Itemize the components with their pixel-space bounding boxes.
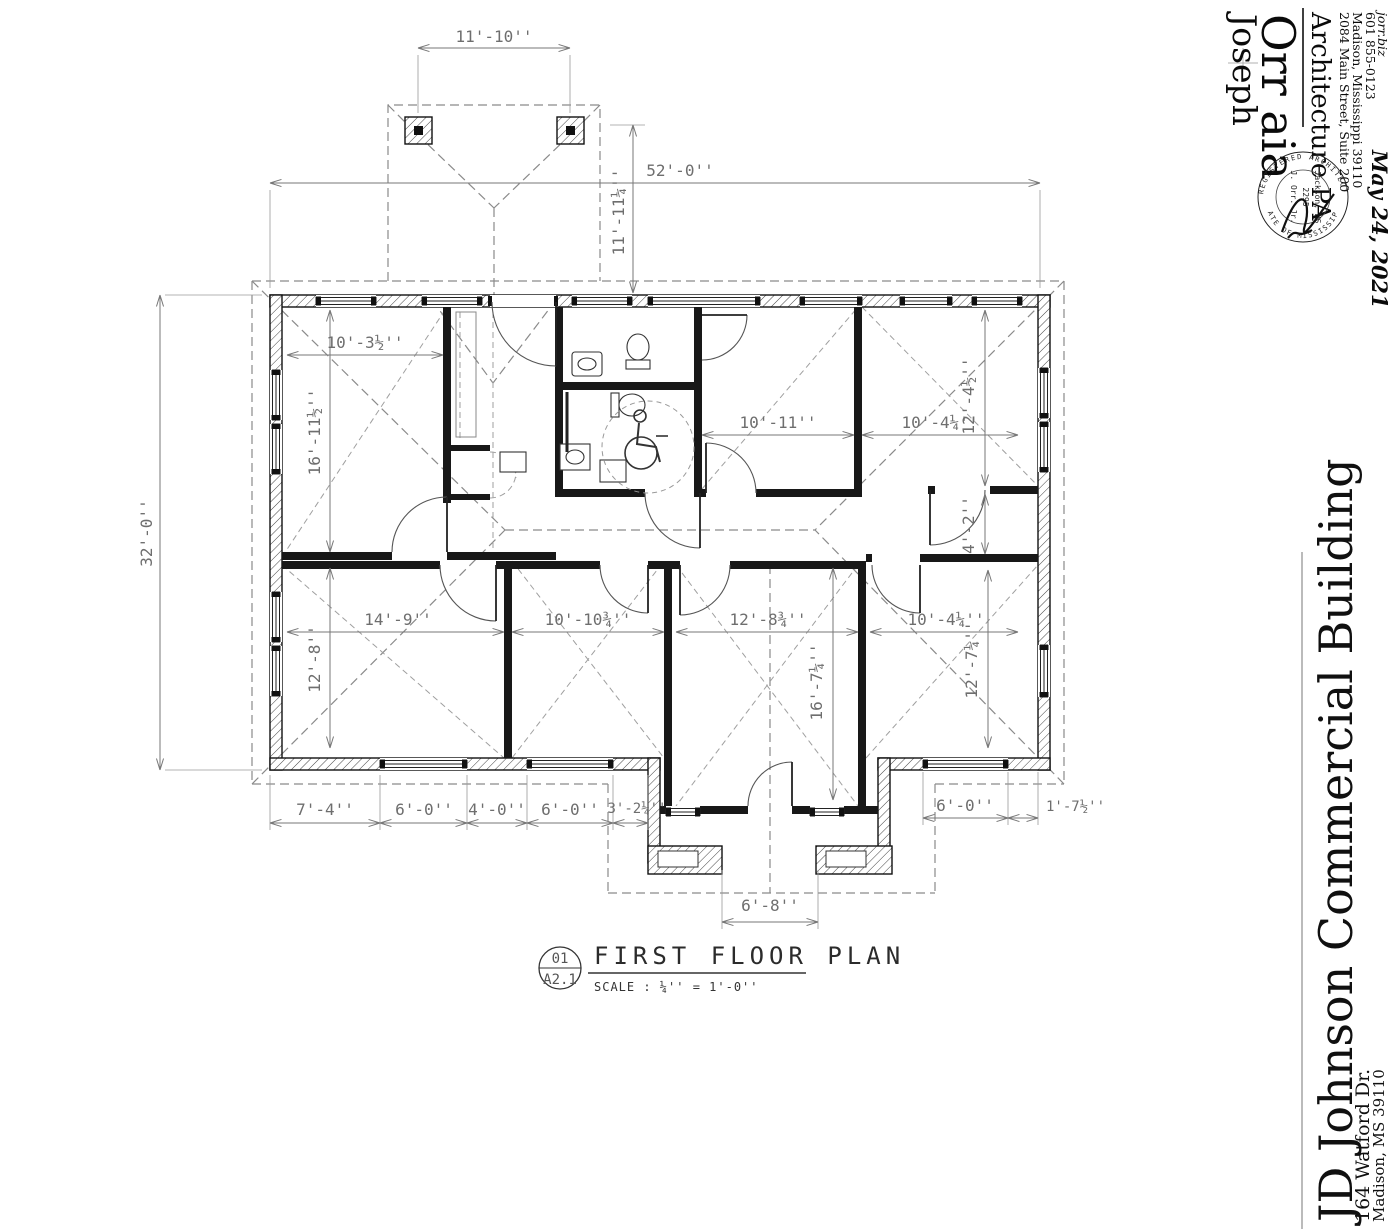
front-door-opening [488, 295, 558, 307]
dimension-lines [156, 44, 1040, 925]
dim-conference-depth: 16'-7¼'' [807, 643, 826, 720]
restroom-fixtures [500, 334, 694, 493]
title-block: 01 A2.1 FIRST FLOOR PLAN SCALE : ¼'' = 1… [539, 942, 905, 994]
architect-city: Madison, Mississippi 39110 [1350, 12, 1365, 188]
dim-office-sw-depth: 12'-8'' [305, 625, 324, 692]
interior-walls [282, 307, 1038, 814]
sheet-number: A2.1 [543, 972, 577, 988]
toilet-icon [627, 334, 649, 360]
dim-south-seg2: 6'-0'' [395, 800, 453, 819]
dim-office-s-width: 10'-10¾'' [545, 610, 632, 629]
architect-website: jorr.biz [1375, 9, 1390, 57]
dim-office-n-width: 10'-11'' [739, 413, 816, 432]
dim-office-ne-depth: 12'-4½'' [959, 357, 978, 434]
detail-number: 01 [552, 951, 569, 967]
dim-entry-width: 6'-8'' [741, 896, 799, 915]
fountain-icon [500, 452, 526, 472]
dim-overall-width: 52'-0'' [646, 161, 713, 180]
architect-logo-line2: Orr aia [1251, 14, 1305, 180]
stamp-date: May 24, 2021 [1367, 149, 1392, 309]
dim-porch-width: 11'-10'' [455, 27, 532, 46]
dim-conference-width: 12'-8¾'' [729, 610, 806, 629]
dim-porch-depth: 11'-11¼'' [609, 169, 628, 256]
architect-seal: REGISTERED ARCHITECT STATE OF MISSISSIPP… [0, 0, 1392, 309]
dim-south-seg1: 7'-4'' [296, 800, 354, 819]
dim-office-nw-depth: 16'-11½'' [305, 389, 324, 476]
dim-office-sw-width: 14'-9'' [364, 610, 431, 629]
drawing-sheet: 11'-10'' 52'-0'' 11'-11¼'' 32'-0'' 10'-3… [0, 0, 1400, 1229]
porch-columns [405, 117, 584, 144]
dim-office-nw-width: 10'-3½'' [326, 333, 403, 352]
seal-name: J. Orr. Jr. [1289, 171, 1298, 224]
floor-plan-drawing: 11'-10'' 52'-0'' 11'-11¼'' 32'-0'' 10'-3… [0, 0, 1400, 1229]
drawing-title: FIRST FLOOR PLAN [594, 942, 905, 970]
dim-south-seg7: 1'-7½'' [1046, 799, 1105, 815]
dim-south-seg6: 6'-0'' [936, 796, 994, 815]
drawing-scale: SCALE : ¼'' = 1'-0'' [594, 980, 759, 994]
wheelchair-icon [602, 401, 694, 493]
dim-hall-east: 4'-2'' [959, 496, 978, 554]
dim-office-se-depth: 12'-7¼'' [962, 621, 981, 698]
project-city: Madison, MS 39110 [1370, 1069, 1388, 1222]
exterior-walls [270, 295, 1050, 874]
architect-address: 2084 Main Street, Suite 200 [1337, 12, 1352, 192]
dim-south-seg4: 6'-0'' [541, 800, 599, 819]
dim-south-seg5: 3'-2¼'' [607, 801, 666, 817]
dim-overall-depth: 32'-0'' [137, 499, 156, 566]
dim-south-seg3: 4'-0'' [468, 800, 526, 819]
project-titlebar: JD Johnson Commercial Building 164 Watfo… [1302, 458, 1388, 1229]
ada-toilet-icon [611, 393, 619, 417]
seal-ring-bottom: STATE OF MISSISSIPPI [0, 0, 1340, 240]
